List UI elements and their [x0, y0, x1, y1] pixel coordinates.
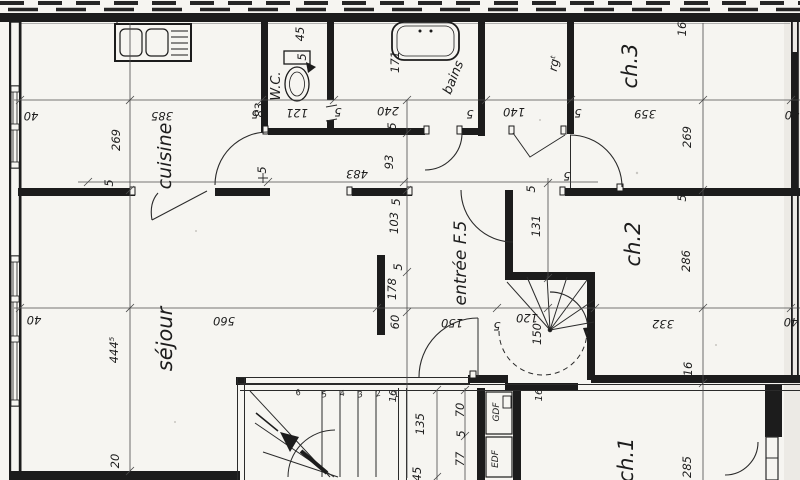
dimension-label: 359: [634, 107, 656, 121]
dimension-label: 20: [108, 454, 122, 469]
room-label: ch.3: [618, 44, 642, 89]
dimension-label: 5: [391, 263, 405, 270]
corridor-wall: [18, 188, 135, 196]
ch2-bottom-wall: [591, 375, 800, 383]
dimension-label: 16: [675, 22, 689, 37]
dimension-label: 5: [102, 179, 116, 186]
dimension-label: 5: [524, 185, 538, 192]
dimension-label: 45: [293, 27, 307, 42]
dimension-label: 5: [675, 194, 689, 201]
dimension-label: 5: [389, 198, 403, 205]
dimension-label: 16: [681, 362, 695, 377]
dimension-label: 5: [255, 166, 269, 173]
room-label: séjour: [153, 305, 177, 371]
sejour-partition: [377, 255, 385, 335]
floor-plan-drawing: 4026953855831215240517145551405359269164…: [0, 0, 800, 480]
wc-bottom-wall: [268, 128, 334, 135]
room-label: rgᵗ: [546, 54, 563, 73]
floor-plan-page: 4026953855831215240517145551405359269164…: [0, 0, 800, 480]
dimension-label: 40: [24, 109, 39, 123]
closet-wall: [567, 22, 574, 134]
dimension-label: 285: [680, 456, 694, 478]
dimension-label: 444⁵: [107, 336, 121, 363]
dimension-label: 150: [441, 316, 463, 330]
stair-wall: [505, 190, 513, 278]
room-label: EDF: [491, 449, 501, 468]
dimension-label: 40: [785, 108, 800, 122]
dimension-label: 5: [493, 319, 500, 333]
dimension-label: 332: [652, 317, 674, 331]
room-label: ch.2: [621, 222, 645, 267]
dimension-label: 45: [410, 467, 424, 480]
dimension-label: 40: [784, 315, 799, 329]
room-label: ch.1: [614, 438, 638, 480]
dimension-label: 483: [346, 167, 368, 181]
dimension-label: 240: [377, 104, 399, 118]
wc-right-wall: [327, 22, 334, 100]
dimension-label: 269: [109, 129, 123, 151]
dimension-label: 120: [516, 311, 538, 325]
dimension-label: 5: [334, 105, 341, 119]
dimension-label: 93: [382, 155, 396, 170]
dimension-label: 5: [295, 53, 309, 60]
dimension-label: 135: [413, 413, 427, 435]
dimension-label: 121: [286, 106, 308, 120]
meter-closet-wall: [477, 388, 485, 480]
dimension-label: 60: [388, 315, 402, 330]
dimension-label: 40: [27, 313, 42, 327]
dimension-label: 150: [530, 323, 544, 345]
dimension-label: 5: [466, 107, 473, 121]
dimension-label: 5: [563, 169, 570, 183]
dimension-label: 560: [213, 314, 235, 328]
room-label: GDF: [492, 402, 502, 422]
dimension-label: 16: [534, 389, 545, 402]
window-mullion: [11, 86, 19, 92]
dimension-label: 171: [388, 51, 402, 73]
dimension-label: 286: [679, 250, 693, 272]
ch1-right-wall: [765, 385, 782, 437]
dimension-label: 103: [387, 212, 401, 234]
bottom-wall: [10, 471, 240, 480]
dimension-label: 140: [503, 105, 525, 119]
dimension-label: 178: [385, 278, 399, 300]
dimension-label: 131: [529, 215, 543, 237]
dimension-label: 70: [453, 403, 467, 418]
dimension-label: 5: [574, 106, 581, 120]
dimension-label: 5: [454, 430, 468, 437]
room-label: cuisine: [154, 123, 176, 190]
room-label: entrée F.5: [451, 220, 471, 305]
dimension-label: 269: [680, 126, 694, 148]
dimension-label: 5: [385, 122, 399, 129]
dimension-label: 77: [453, 451, 467, 466]
dimension-label: 83: [252, 103, 266, 118]
bains-right-wall: [478, 22, 485, 136]
dimension-label: 385: [151, 109, 173, 123]
room-label: W.C.: [269, 71, 284, 100]
